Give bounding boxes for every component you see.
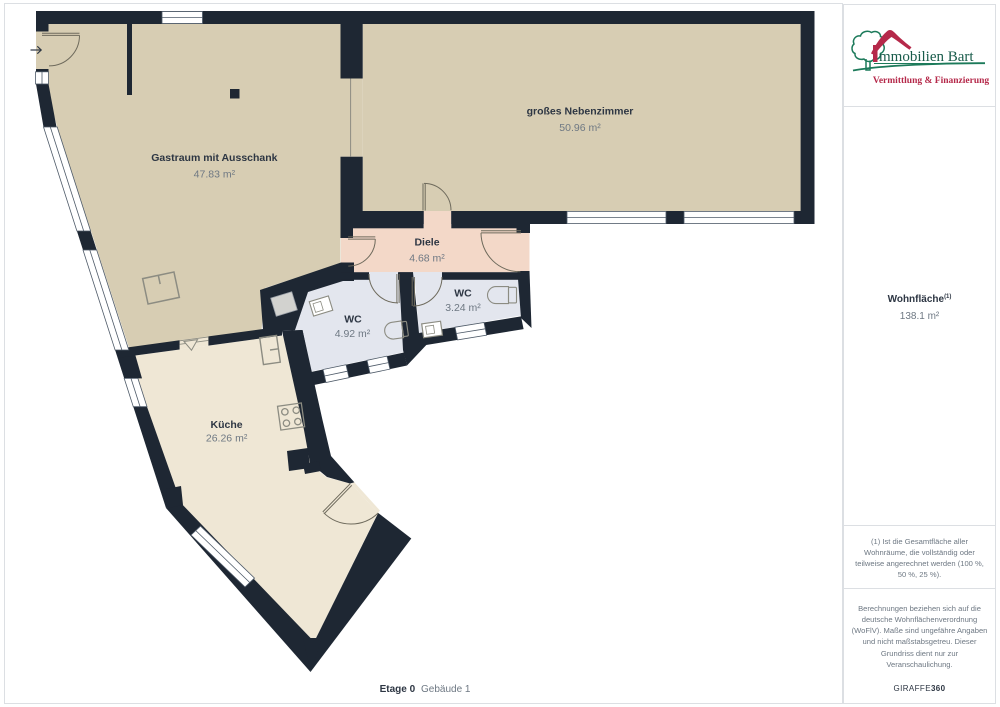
svg-text:Küche: Küche xyxy=(211,419,243,431)
svg-text:3.24 m²: 3.24 m² xyxy=(445,302,481,314)
svg-text:großes Nebenzimmer: großes Nebenzimmer xyxy=(527,106,634,118)
svg-text:47.83 m²: 47.83 m² xyxy=(194,169,236,181)
svg-text:4.92 m²: 4.92 m² xyxy=(335,328,371,340)
svg-text:Vermittlung & Finanzierung: Vermittlung & Finanzierung xyxy=(873,76,990,86)
svg-text:Diele: Diele xyxy=(414,237,439,249)
svg-text:Etage 0: Etage 0 xyxy=(380,684,416,695)
svg-text:WC: WC xyxy=(344,314,362,326)
svg-text:50.96 m²: 50.96 m² xyxy=(559,122,601,134)
svg-text:Gastraum mit Ausschank: Gastraum mit Ausschank xyxy=(151,152,277,164)
svg-text:WC: WC xyxy=(454,288,472,300)
svg-text:26.26 m²: 26.26 m² xyxy=(206,433,248,445)
svg-text:Gebäude 1: Gebäude 1 xyxy=(421,684,471,695)
svg-text:4.68 m²: 4.68 m² xyxy=(409,253,445,265)
